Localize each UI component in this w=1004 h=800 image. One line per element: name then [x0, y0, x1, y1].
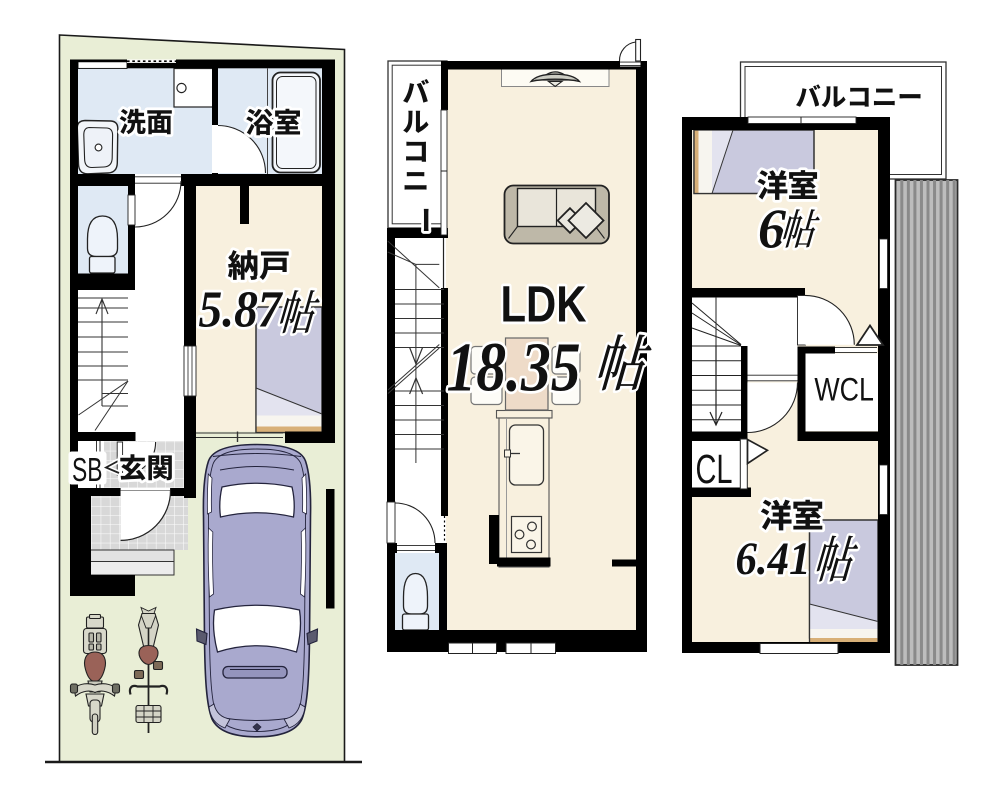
- svg-text:CL: CL: [696, 446, 733, 492]
- svg-text:SB: SB: [72, 452, 103, 489]
- svg-text:WCL: WCL: [814, 371, 874, 407]
- svg-text:LDK: LDK: [501, 275, 587, 332]
- svg-text:18.35: 18.35: [447, 330, 581, 407]
- svg-text:6.41: 6.41: [736, 533, 811, 585]
- svg-text:6: 6: [758, 199, 786, 261]
- svg-text:5.87: 5.87: [199, 282, 284, 339]
